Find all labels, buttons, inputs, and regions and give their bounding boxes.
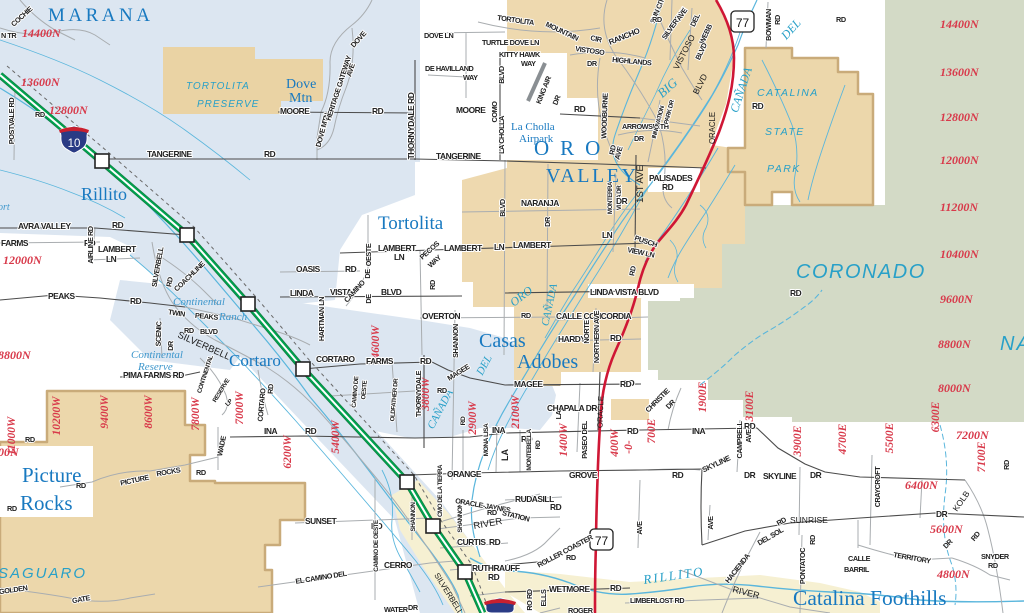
svg-text:Rocks: Rocks — [20, 491, 73, 515]
svg-text:CMO DE LA TIERRA: CMO DE LA TIERRA — [437, 464, 444, 517]
svg-text:DR: DR — [587, 59, 598, 68]
svg-text:RD: RD — [460, 416, 467, 425]
svg-text:OASIS: OASIS — [296, 264, 321, 274]
svg-text:11000W: 11000W — [6, 416, 18, 455]
svg-text:7200N: 7200N — [956, 428, 990, 442]
svg-text:BLVD: BLVD — [200, 327, 218, 336]
svg-text:ROGER: ROGER — [568, 606, 594, 613]
svg-text:7800W: 7800W — [190, 397, 202, 431]
svg-text:POSTVALE RD: POSTVALE RD — [7, 98, 16, 145]
svg-text:PEAKS: PEAKS — [48, 291, 75, 301]
svg-text:CURTIS: CURTIS — [457, 537, 486, 547]
svg-text:RD: RD — [566, 553, 576, 562]
svg-text:-0-: -0- — [623, 440, 635, 454]
svg-text:KITTY HAWK: KITTY HAWK — [499, 50, 541, 59]
svg-text:CALLE: CALLE — [848, 554, 871, 563]
svg-text:LAMBERT: LAMBERT — [98, 244, 137, 254]
svg-text:DE: DE — [363, 269, 372, 279]
svg-text:700E: 700E — [646, 418, 658, 443]
svg-text:10200W: 10200W — [51, 396, 63, 436]
svg-text:INA: INA — [692, 426, 705, 436]
svg-text:Dove: Dove — [286, 77, 316, 92]
svg-text:Ranch: Ranch — [218, 311, 248, 323]
svg-text:CORONADO: CORONADO — [796, 261, 926, 283]
svg-text:RD: RD — [305, 426, 317, 436]
svg-text:77: 77 — [595, 534, 609, 548]
svg-text:INA: INA — [492, 425, 505, 435]
svg-text:NORTE: NORTE — [582, 320, 591, 344]
svg-text:DR: DR — [936, 509, 948, 519]
svg-text:CRAYCROFT: CRAYCROFT — [873, 466, 882, 507]
svg-text:SCENIC: SCENIC — [154, 320, 164, 346]
svg-text:LN: LN — [106, 254, 117, 264]
svg-text:PIMA FARMS RD: PIMA FARMS RD — [123, 370, 184, 380]
svg-text:4700E: 4700E — [837, 423, 849, 455]
svg-text:NORTHERN AVE: NORTHERN AVE — [592, 310, 601, 363]
svg-text:7100E: 7100E — [976, 441, 988, 472]
svg-text:NAT: NAT — [1000, 333, 1024, 355]
svg-text:Mtn: Mtn — [289, 91, 312, 106]
svg-text:ORACLE: ORACLE — [708, 112, 717, 144]
svg-text:SHANNON: SHANNON — [457, 503, 464, 533]
svg-text:AVE: AVE — [706, 516, 715, 530]
svg-text:SHANNON: SHANNON — [451, 324, 460, 358]
svg-text:1400W: 1400W — [558, 423, 570, 457]
svg-text:RD: RD — [428, 280, 437, 290]
svg-text:DR: DR — [408, 603, 419, 612]
svg-text:MARANA: MARANA — [48, 5, 153, 26]
svg-text:La Cholla: La Cholla — [511, 121, 555, 133]
svg-text:LA: LA — [500, 449, 510, 461]
svg-text:8800N: 8800N — [0, 348, 32, 362]
svg-text:MAGEE: MAGEE — [514, 379, 543, 389]
svg-text:ELLS: ELLS — [539, 589, 548, 606]
svg-text:AIRLINE RD: AIRLINE RD — [86, 226, 95, 263]
svg-text:4800N: 4800N — [936, 567, 971, 581]
svg-text:RD: RD — [790, 288, 802, 298]
svg-text:RD: RD — [773, 15, 782, 25]
svg-text:LAMBERT: LAMBERT — [513, 240, 552, 250]
svg-text:RD: RD — [521, 311, 531, 320]
svg-text:RD: RD — [488, 572, 500, 582]
svg-text:1ST AVE: 1ST AVE — [635, 165, 646, 203]
svg-text:SHANNON: SHANNON — [410, 502, 417, 532]
svg-text:RD: RD — [535, 440, 542, 449]
svg-text:RD: RD — [610, 583, 622, 593]
svg-text:LA: LA — [554, 409, 563, 419]
svg-text:RD: RD — [988, 561, 998, 570]
svg-text:RD: RD — [627, 265, 638, 276]
svg-text:5600N: 5600N — [930, 522, 964, 536]
svg-text:PASEO DEL: PASEO DEL — [580, 420, 589, 459]
svg-text:RD: RD — [489, 537, 501, 547]
svg-text:LN: LN — [494, 242, 505, 252]
svg-text:CORTARO: CORTARO — [316, 354, 356, 364]
svg-text:MONA LISA: MONA LISA — [483, 423, 490, 456]
svg-text:RD: RD — [76, 481, 86, 490]
svg-text:Picture: Picture — [22, 463, 81, 487]
svg-text:RD: RD — [264, 149, 276, 159]
svg-text:BLVD: BLVD — [381, 287, 402, 297]
svg-text:ort: ort — [0, 202, 10, 213]
svg-text:NARANJA: NARANJA — [521, 198, 559, 208]
svg-text:12000N: 12000N — [940, 153, 980, 167]
svg-text:RD: RD — [607, 144, 618, 155]
svg-text:BLVD: BLVD — [498, 199, 507, 217]
svg-text:3900E: 3900E — [792, 425, 804, 457]
svg-text:LN: LN — [394, 252, 405, 262]
svg-text:Cortaro: Cortaro — [229, 351, 281, 370]
svg-text:8600W: 8600W — [143, 395, 155, 429]
svg-text:MONTEBELLA: MONTEBELLA — [526, 429, 533, 471]
svg-text:INA: INA — [264, 426, 277, 436]
svg-text:MONTERRA: MONTERRA — [607, 181, 614, 214]
svg-text:RUDASILL: RUDASILL — [515, 494, 554, 504]
svg-text:DR: DR — [810, 470, 822, 480]
svg-text:SUNRISE: SUNRISE — [790, 515, 828, 525]
svg-text:10400N: 10400N — [940, 247, 980, 261]
svg-text:Continental: Continental — [131, 349, 183, 361]
svg-text:PONTATOC: PONTATOC — [798, 547, 807, 584]
svg-text:3100E: 3100E — [744, 390, 756, 422]
svg-text:VALLEY: VALLEY — [546, 165, 638, 187]
svg-text:RD: RD — [672, 470, 684, 480]
svg-text:400W: 400W — [609, 428, 621, 457]
svg-text:BLVD: BLVD — [497, 66, 506, 84]
svg-text:Catalina Foothills: Catalina Foothills — [793, 586, 946, 610]
svg-text:THORNYDALE RD: THORNYDALE RD — [406, 92, 416, 159]
svg-text:SUNSET: SUNSET — [305, 516, 338, 526]
svg-text:14400N: 14400N — [940, 17, 980, 31]
svg-text:TURTLE DOVE LN: TURTLE DOVE LN — [482, 38, 539, 47]
svg-text:RD: RD — [35, 110, 45, 119]
svg-text:ORACLE: ORACLE — [595, 396, 605, 428]
svg-text:PARK: PARK — [767, 163, 801, 175]
svg-text:RD: RD — [662, 182, 674, 192]
svg-text:RD: RD — [610, 333, 622, 343]
svg-text:DR: DR — [616, 196, 628, 206]
svg-text:14400N: 14400N — [22, 26, 62, 40]
svg-text:WETMORE: WETMORE — [549, 584, 590, 594]
svg-text:RD: RD — [345, 264, 357, 274]
svg-text:WATER: WATER — [384, 605, 409, 613]
svg-text:2900W: 2900W — [467, 401, 479, 436]
svg-text:LAMBERT: LAMBERT — [444, 243, 483, 253]
svg-text:Continental: Continental — [173, 296, 225, 308]
svg-text:RD: RD — [550, 502, 562, 512]
svg-text:WAY: WAY — [521, 59, 536, 68]
svg-text:SAGUARO: SAGUARO — [0, 565, 87, 582]
svg-text:AVE: AVE — [635, 521, 644, 535]
svg-text:THORNYDALE: THORNYDALE — [414, 370, 423, 417]
svg-text:9400W: 9400W — [99, 395, 111, 429]
svg-text:6200W: 6200W — [282, 435, 294, 469]
svg-text:BOWMAN: BOWMAN — [764, 9, 773, 41]
svg-text:TANGERINE: TANGERINE — [436, 151, 482, 161]
svg-text:RD: RD — [808, 535, 817, 545]
svg-text:WOODBURNE: WOODBURNE — [599, 93, 610, 139]
svg-text:OESTE: OESTE — [364, 243, 373, 266]
svg-text:RD: RD — [1002, 460, 1011, 470]
svg-text:RD: RD — [627, 426, 639, 436]
svg-text:LINDA VISTA BLVD: LINDA VISTA BLVD — [590, 287, 659, 297]
svg-text:FARMS: FARMS — [1, 238, 29, 248]
svg-text:8000N: 8000N — [938, 381, 972, 395]
svg-text:PRESERVE: PRESERVE — [197, 99, 259, 110]
svg-text:LN: LN — [602, 230, 613, 240]
svg-text:RD: RD — [420, 356, 432, 366]
svg-text:7000W: 7000W — [234, 391, 246, 425]
svg-text:LIMBERLOST RD: LIMBERLOST RD — [630, 596, 684, 605]
svg-text:Tortolita: Tortolita — [378, 213, 444, 234]
svg-text:SNYDER: SNYDER — [981, 552, 1010, 561]
svg-text:6400N: 6400N — [905, 478, 939, 492]
svg-text:N TR: N TR — [1, 31, 17, 40]
svg-text:2100W: 2100W — [510, 395, 522, 430]
svg-text:LA CHOLLA: LA CHOLLA — [497, 115, 506, 154]
svg-text:RD: RD — [25, 435, 35, 444]
svg-text:RD: RD — [437, 386, 447, 395]
svg-text:GROVE: GROVE — [569, 470, 598, 480]
svg-text:CERRO: CERRO — [384, 560, 413, 570]
svg-text:9600N: 9600N — [940, 292, 974, 306]
svg-text:AVRA VALLEY: AVRA VALLEY — [18, 221, 71, 231]
svg-text:RD: RD — [752, 101, 764, 111]
svg-text:RD: RD — [620, 379, 632, 389]
svg-text:SKYLINE: SKYLINE — [763, 471, 797, 481]
svg-text:RD: RD — [130, 296, 142, 306]
svg-text:CAMPBELL: CAMPBELL — [735, 421, 744, 459]
svg-text:DR: DR — [166, 340, 175, 351]
svg-text:DOVE LN: DOVE LN — [424, 31, 453, 40]
svg-text:ORANGE: ORANGE — [447, 469, 482, 479]
svg-text:RD: RD — [372, 106, 384, 116]
svg-text:RO RD: RO RD — [525, 589, 534, 610]
svg-text:MOORE: MOORE — [280, 106, 310, 116]
svg-text:DR: DR — [744, 470, 756, 480]
svg-text:FARMS: FARMS — [366, 356, 394, 366]
svg-text:13600N: 13600N — [940, 65, 980, 79]
svg-text:DE HAVILLAND: DE HAVILLAND — [425, 64, 474, 73]
svg-text:DR: DR — [634, 134, 645, 143]
svg-text:OVERTON: OVERTON — [422, 311, 461, 321]
svg-text:RD: RD — [487, 508, 497, 517]
svg-text:5500E: 5500E — [884, 422, 896, 453]
svg-text:TANGERINE: TANGERINE — [147, 149, 193, 159]
svg-text:WAY: WAY — [463, 73, 478, 82]
svg-text:RD: RD — [574, 104, 586, 114]
svg-text:10: 10 — [68, 138, 81, 150]
svg-text:LINDA: LINDA — [290, 288, 314, 298]
svg-text:12800N: 12800N — [940, 110, 980, 124]
svg-text:4600W: 4600W — [370, 325, 382, 360]
svg-text:CAMINO DE OESTE: CAMINO DE OESTE — [373, 520, 380, 572]
svg-text:5400W: 5400W — [330, 420, 342, 454]
svg-text:Airpark: Airpark — [519, 133, 554, 145]
svg-text:STATE: STATE — [765, 126, 805, 138]
svg-text:RD: RD — [196, 468, 206, 477]
svg-text:RD: RD — [266, 384, 276, 395]
svg-text:RD: RD — [112, 220, 124, 230]
svg-text:8800N: 8800N — [938, 337, 972, 351]
svg-text:HARTMAN LN: HARTMAN LN — [317, 297, 326, 341]
svg-text:RD: RD — [652, 15, 662, 24]
svg-text:13600N: 13600N — [21, 75, 61, 89]
svg-text:RD: RD — [7, 504, 17, 513]
svg-text:1900E: 1900E — [697, 381, 709, 412]
svg-text:AVE: AVE — [744, 429, 753, 443]
svg-text:12800N: 12800N — [49, 103, 89, 117]
svg-text:6300E: 6300E — [930, 401, 942, 432]
svg-text:DE: DE — [364, 294, 373, 304]
svg-text:12000N: 12000N — [3, 253, 43, 267]
svg-text:CATALINA: CATALINA — [757, 87, 819, 99]
svg-text:DR: DR — [543, 216, 552, 227]
svg-text:11200N: 11200N — [940, 200, 979, 214]
svg-text:Adobes: Adobes — [517, 351, 578, 373]
svg-text:RD: RD — [836, 15, 846, 24]
svg-text:TORTOLITA: TORTOLITA — [186, 81, 250, 92]
svg-text:Casas: Casas — [479, 330, 526, 352]
svg-text:MOORE: MOORE — [456, 105, 486, 115]
svg-text:77: 77 — [736, 16, 750, 30]
svg-text:BARRIL: BARRIL — [844, 565, 870, 574]
svg-text:Rillito: Rillito — [81, 184, 127, 204]
